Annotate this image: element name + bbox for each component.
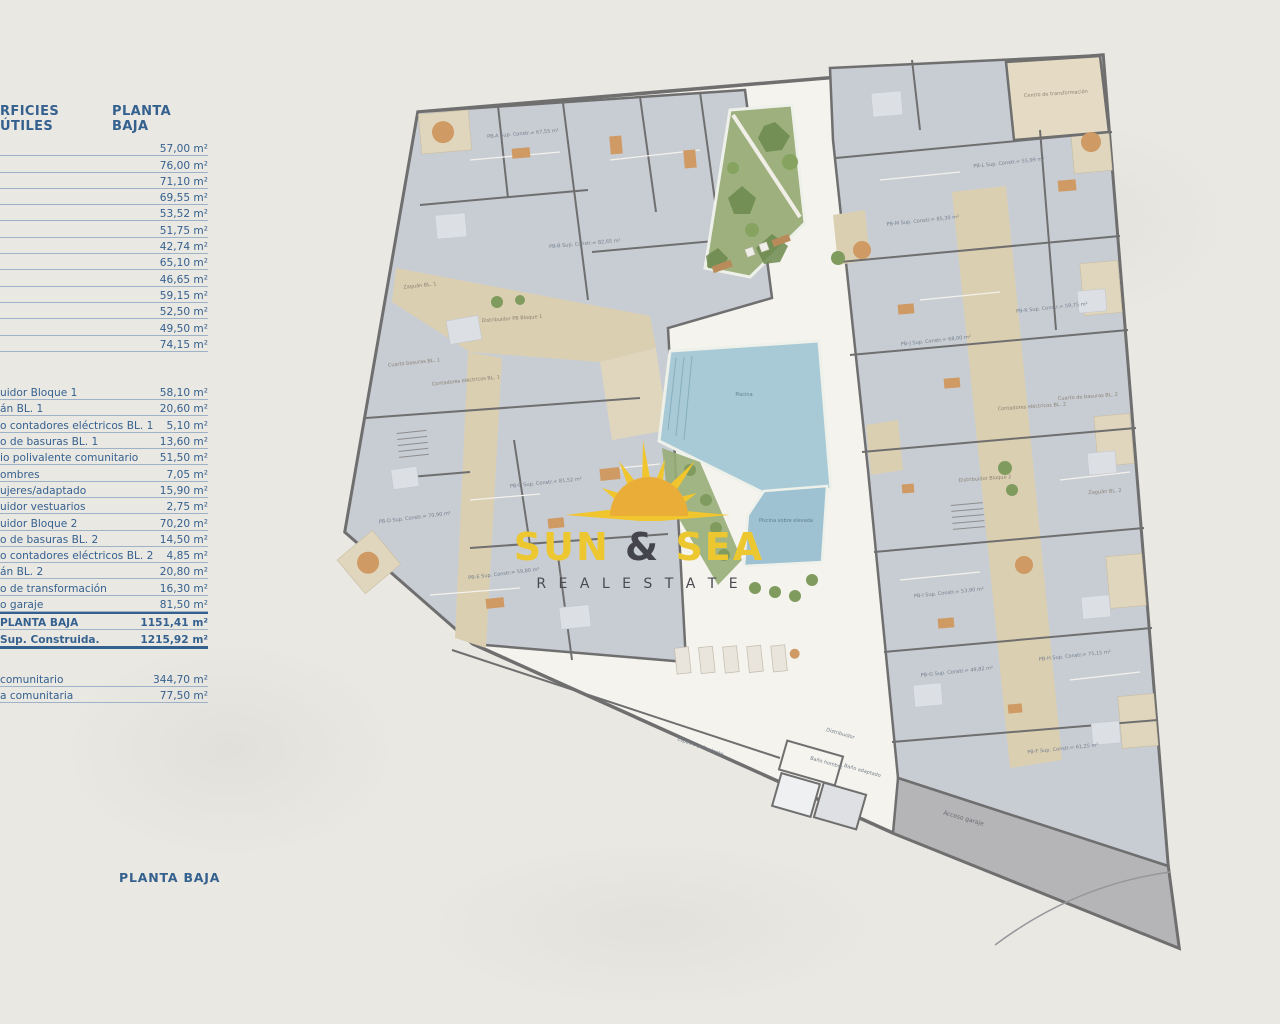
- raised-pool-label: Piscina sobre elevada: [759, 518, 813, 524]
- floor-plan: PB-A Sup. Constr.= 67,55 m² PB-B Sup. Co…: [0, 0, 1280, 1024]
- terrace: [418, 110, 471, 154]
- pool-label: Piscina: [735, 392, 752, 398]
- logo-tagline: R E A L E S T A T E: [536, 576, 741, 592]
- transformation-room: [1006, 56, 1109, 140]
- logo-wordmark: SUN & SEA: [514, 525, 764, 569]
